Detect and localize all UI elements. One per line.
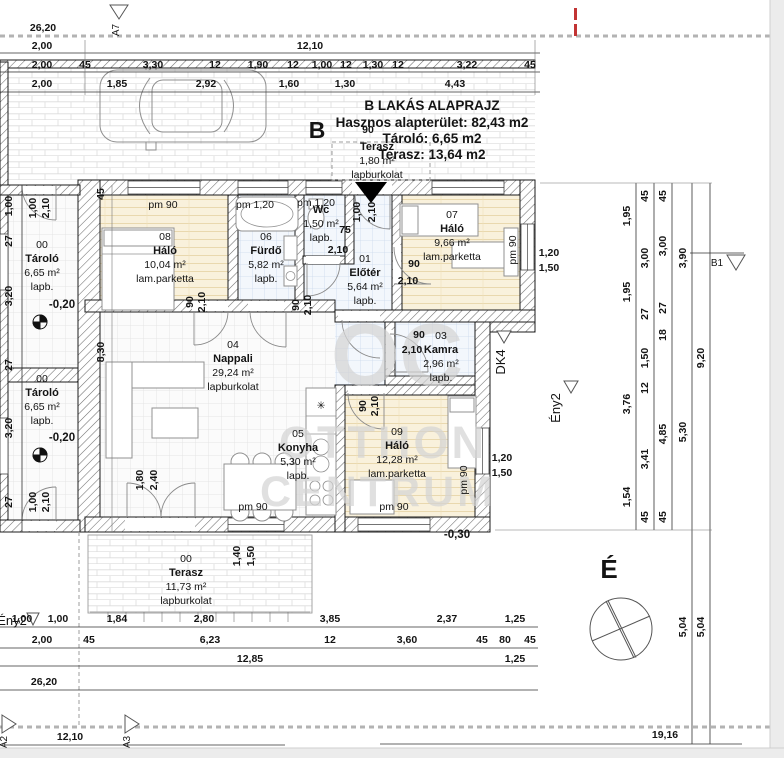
- level-label: -0,30: [444, 529, 470, 541]
- dim-label: 1,85: [107, 78, 128, 90]
- section-letter-b: B: [309, 117, 326, 143]
- plan-storage-line: Tároló: 6,65 m2: [382, 131, 481, 146]
- dim-label: 1,84: [107, 613, 128, 625]
- room-name: Kamra: [424, 344, 459, 356]
- dim-label: 8,30: [95, 342, 107, 363]
- dim-label: 1,00: [12, 613, 33, 625]
- dim-label: 9,20: [695, 348, 707, 369]
- dim-label: 2,80: [194, 613, 215, 625]
- annotation-label: pm 90: [148, 199, 177, 211]
- washbasin: [284, 236, 297, 260]
- dim-label: 26,20: [31, 676, 57, 688]
- room-area: 9,66 m²: [434, 237, 470, 249]
- dim-label: 2,00: [32, 40, 53, 52]
- window: [358, 518, 430, 531]
- room-area: 10,04 m²: [144, 259, 186, 271]
- annotation-label: pm 1,20: [297, 197, 335, 209]
- dim-label: 1,00: [312, 59, 333, 71]
- dim-label: 19,16: [652, 729, 678, 741]
- red-mark: [574, 8, 577, 20]
- dim-label: 1,30: [363, 59, 384, 71]
- annotation-label: pm 90: [507, 235, 519, 264]
- room-name: Háló: [385, 440, 409, 452]
- dim-label: 45: [524, 59, 536, 71]
- dim-label: 80: [499, 634, 511, 646]
- dim-label: 3,20: [3, 286, 15, 307]
- bed: [400, 204, 478, 236]
- room-number: 03: [435, 330, 447, 342]
- dim-label: 5,04: [695, 617, 707, 638]
- room-number: 05: [292, 428, 304, 440]
- annotation-label: pm 90: [379, 501, 408, 513]
- dim-label: 45: [476, 634, 488, 646]
- dim-label: 3,30: [143, 59, 164, 71]
- dim-label: 3,20: [3, 418, 15, 439]
- dim-label: 90: [184, 296, 196, 308]
- dim-label: 45: [657, 511, 669, 523]
- dim-label: 3,85: [320, 613, 341, 625]
- room-area: 5,64 m²: [347, 281, 383, 293]
- code-label: Ény2: [548, 393, 563, 423]
- dim-label: 1,50: [539, 262, 560, 274]
- room-name: Tároló: [25, 253, 59, 265]
- room-name: Terasz: [360, 141, 395, 153]
- red-mark: [574, 24, 577, 36]
- room-area: 1,50 m²: [303, 218, 339, 230]
- dim-label: 12: [287, 59, 299, 71]
- dim-label: 1,00: [48, 613, 69, 625]
- room-number: 09: [391, 426, 403, 438]
- dim-label: 1,20: [539, 247, 560, 259]
- room-floor-type: lapb.: [287, 470, 310, 482]
- marker-b1-icon: [727, 255, 745, 270]
- annotation-label: ✳: [317, 400, 326, 412]
- dim-label: 12,10: [297, 40, 323, 52]
- annotation-label: pm 90: [238, 501, 267, 513]
- room-area: 11,73 m²: [166, 581, 207, 593]
- dim-label: 90: [408, 258, 420, 270]
- dim-label: 1,80: [134, 470, 146, 491]
- dim-label: 90: [290, 299, 302, 311]
- dim-label: 12: [324, 634, 336, 646]
- dim-label: 2,10: [369, 396, 381, 417]
- room-floor-type: lam.parketta: [136, 273, 194, 285]
- dim-label: 27: [639, 308, 651, 320]
- room-area: 5,30 m²: [280, 456, 316, 468]
- dim-label: 2,92: [196, 78, 217, 90]
- axis-label: A2: [0, 735, 10, 748]
- dim-label: 45: [524, 634, 536, 646]
- room-number: 00: [180, 553, 192, 565]
- dim-label: 2,10: [40, 492, 52, 513]
- axis-label: A3: [122, 735, 133, 748]
- room-number: 06: [260, 231, 272, 243]
- dim-label: 12: [209, 59, 221, 71]
- room-name: Nappali: [213, 353, 253, 365]
- window: [238, 181, 288, 194]
- dim-label: 2,00: [32, 78, 53, 90]
- dim-label: 1,40: [231, 546, 243, 567]
- room-floor-type: lapburkolat: [207, 381, 258, 393]
- dim-label: 4,43: [445, 78, 466, 90]
- marker-eny2-icon: [564, 381, 578, 393]
- dim-label: 3,00: [639, 248, 651, 269]
- dim-label: 1,20: [492, 452, 513, 464]
- marker-a3-icon: [125, 715, 139, 733]
- marker-a2-icon: [2, 715, 16, 733]
- dim-label: 90: [413, 329, 425, 341]
- axis-label: B1: [711, 258, 724, 269]
- dim-label: 1,50: [639, 348, 651, 369]
- dim-label: 2,10: [196, 292, 208, 313]
- room-area: 6,65 m²: [24, 267, 60, 279]
- annotation-label: pm 1,20: [236, 199, 274, 211]
- marker-a7-icon: [110, 5, 128, 19]
- room-number: 01: [359, 253, 371, 265]
- room-floor-type: lapb.: [31, 281, 54, 293]
- dim-label: 12: [392, 59, 404, 71]
- room-floor-type: lapb.: [255, 273, 278, 285]
- dim-label: 75: [339, 224, 351, 236]
- dim-label: 1,00: [27, 198, 39, 219]
- level-label: -0,20: [49, 299, 75, 311]
- dim-label: 90: [362, 124, 374, 136]
- dim-label: 1,30: [335, 78, 356, 90]
- dim-label: 2,10: [366, 202, 378, 223]
- room-name: Háló: [153, 245, 177, 257]
- plan-title: B LAKÁS ALAPRAJZ: [364, 98, 499, 113]
- room-name: Tároló: [25, 387, 59, 399]
- dim-label: 12,10: [57, 731, 83, 743]
- room-area: 29,24 m²: [212, 367, 254, 379]
- room-number: 00: [36, 239, 48, 251]
- dim-label: 3,90: [677, 248, 689, 269]
- dim-label: 26,20: [30, 22, 56, 34]
- dim-label: 1,00: [351, 202, 363, 223]
- dim-label: 1,95: [621, 282, 633, 303]
- dim-label: 1,95: [621, 206, 633, 227]
- dim-label: 90: [357, 400, 369, 412]
- room-floor-type: lapburkolat: [351, 169, 402, 181]
- window: [128, 181, 200, 194]
- room-area: 5,82 m²: [248, 259, 284, 271]
- dim-label: 1,50: [245, 546, 257, 567]
- dim-label: 4,85: [657, 424, 669, 445]
- marker-dk4-icon: [497, 331, 511, 343]
- dim-label: 12: [639, 382, 651, 394]
- dim-label: 45: [639, 190, 651, 202]
- annotation-label: pm 90: [458, 465, 470, 494]
- room-number: 00: [36, 373, 48, 385]
- room-floor-type: lapb.: [354, 295, 377, 307]
- room-area: 2,96 m²: [423, 358, 459, 370]
- floor-plan-page: OC OTTHON CENTRUM: [0, 0, 784, 758]
- room-area: 1,80 m²: [359, 155, 395, 167]
- room-floor-type: lam.parketta: [423, 251, 481, 263]
- room-floor-type: lapb.: [430, 372, 453, 384]
- north-compass: [590, 598, 652, 660]
- dim-label: 45: [83, 634, 95, 646]
- room-name: Fürdő: [250, 245, 281, 257]
- room-name: Konyha: [278, 442, 319, 454]
- dim-label: 2,10: [402, 344, 423, 356]
- dim-label: 45: [79, 59, 91, 71]
- dim-label: 2,10: [328, 244, 349, 256]
- dim-label: 1,25: [505, 613, 526, 625]
- dim-label: 3,60: [397, 634, 418, 646]
- room-name: Háló: [440, 223, 464, 235]
- dim-label: 2,40: [148, 470, 160, 491]
- dim-label: 18: [657, 329, 669, 341]
- room-area: 12,28 m²: [376, 454, 418, 466]
- level-label: -0,20: [49, 432, 75, 444]
- fence-left: [0, 62, 8, 185]
- room-name: Előtér: [349, 267, 381, 279]
- code-label: DK4: [493, 349, 508, 374]
- room-floor-type: lam.parketta: [368, 468, 426, 480]
- dim-label: 2,00: [32, 59, 53, 71]
- dim-label: 2,10: [302, 295, 314, 316]
- window: [521, 224, 534, 270]
- dim-label: 1,60: [279, 78, 300, 90]
- north-label: É: [600, 554, 617, 584]
- room-floor-type: lapburkolat: [160, 595, 211, 607]
- washing-machine: [284, 266, 297, 286]
- dim-label: 3,22: [457, 59, 478, 71]
- dim-label: 1,90: [248, 59, 269, 71]
- room-number: 08: [159, 231, 171, 243]
- dim-label: 3,00: [657, 236, 669, 257]
- dim-label: 1,50: [492, 467, 513, 479]
- floor-plan-svg: OC OTTHON CENTRUM: [0, 0, 784, 758]
- window: [306, 181, 342, 194]
- room-number: 04: [227, 339, 239, 351]
- dim-label: 2,10: [40, 198, 52, 219]
- dim-label: 27: [3, 359, 15, 371]
- dim-label: 3,76: [621, 394, 633, 415]
- axis-label: A7: [111, 23, 122, 36]
- dim-label: 2,37: [437, 613, 458, 625]
- dim-label: 1,25: [505, 653, 526, 665]
- room-number: 07: [446, 209, 458, 221]
- dim-label: 2,10: [398, 275, 419, 287]
- dim-label: 5,04: [677, 617, 689, 638]
- dim-label: 45: [657, 190, 669, 202]
- room-floor-type: lapb.: [31, 415, 54, 427]
- dim-label: 27: [3, 496, 15, 508]
- dim-label: 1,00: [27, 492, 39, 513]
- window: [432, 181, 504, 194]
- room-name: Terasz: [169, 567, 204, 579]
- dim-label: 45: [95, 188, 107, 200]
- dim-label: 2,00: [32, 634, 53, 646]
- dim-label: 27: [657, 302, 669, 314]
- dim-label: 1,00: [3, 196, 15, 217]
- room-floor-type: lapb.: [310, 232, 333, 244]
- room-area: 6,65 m²: [24, 401, 60, 413]
- dim-label: 12,85: [237, 653, 263, 665]
- dim-label: 6,23: [200, 634, 221, 646]
- dim-label: 5,30: [677, 422, 689, 443]
- dim-label: 1,54: [621, 487, 633, 508]
- dim-label: 27: [3, 235, 15, 247]
- dim-label: 45: [639, 511, 651, 523]
- dim-label: 12: [340, 59, 352, 71]
- dim-label: 3,41: [639, 449, 651, 470]
